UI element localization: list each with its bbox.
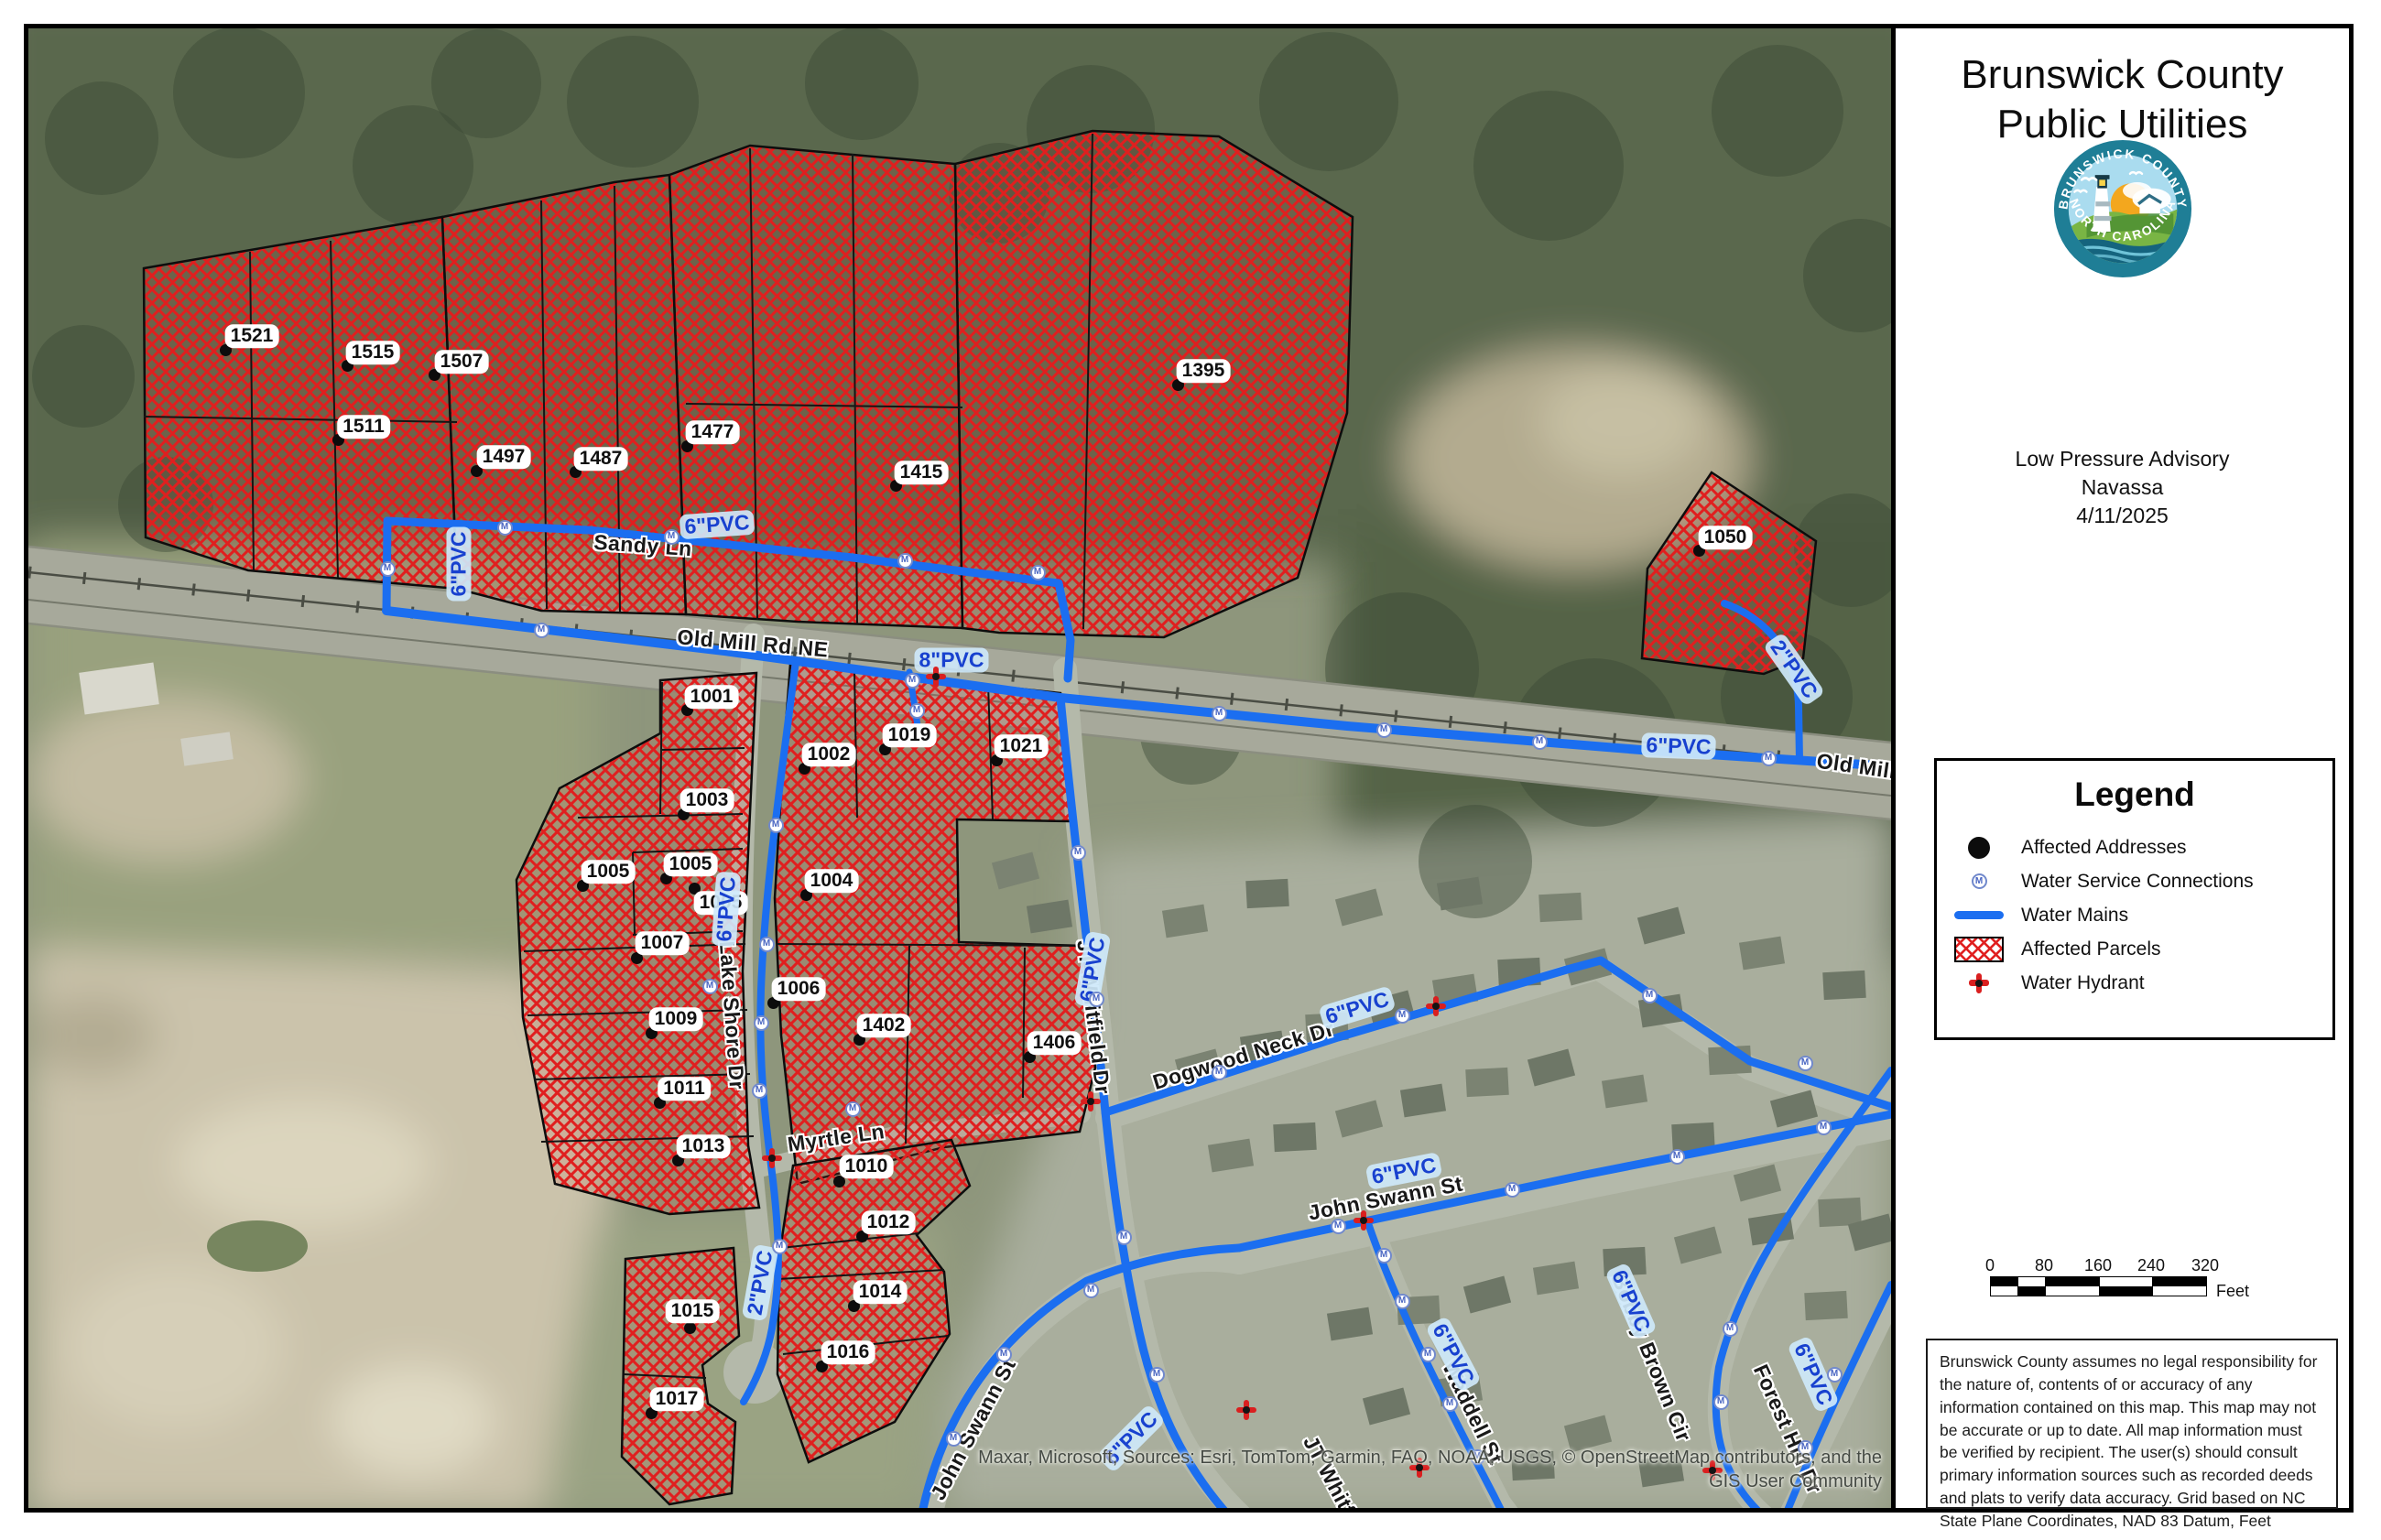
address-label: 1395: [1177, 359, 1231, 383]
water-service-connection-icon: M: [1089, 992, 1104, 1007]
address-label: 1001: [685, 685, 739, 709]
scale-bar: 0 80 160 240 320 Feet: [1990, 1256, 2265, 1296]
water-service-connection-icon: M: [1505, 1182, 1520, 1198]
side-panel: Brunswick County Public Utilities: [1896, 28, 2349, 1508]
water-service-connection-icon: M: [534, 623, 549, 638]
map-overlays: 1521151515071511149714871477141513951050…: [28, 28, 1891, 1508]
scale-tick: 320: [2191, 1256, 2219, 1275]
map-area: 1521151515071511149714871477141513951050…: [28, 28, 1896, 1508]
pipe-size-label: 6"PVC: [712, 872, 742, 948]
water-service-connection-icon: M: [1149, 1367, 1165, 1383]
address-label: 1507: [435, 350, 489, 374]
water-service-connection-icon: M: [768, 818, 784, 833]
water-service-connection-icon: M: [1395, 1294, 1410, 1309]
water-service-connection-icon: M: [752, 1083, 767, 1099]
address-label: 1009: [649, 1007, 703, 1031]
document-frame: 1521151515071511149714871477141513951050…: [24, 24, 2354, 1513]
water-hydrant-icon: [1236, 1400, 1256, 1420]
street-label: Myrtle Ln: [786, 1119, 886, 1157]
address-label: 1511: [337, 415, 390, 439]
water-service-connection-icon: M: [1376, 1248, 1392, 1263]
advisory-type: Low Pressure Advisory: [1896, 445, 2349, 473]
water-hydrant-icon: [1081, 1091, 1101, 1112]
water-service-connection-icon: M: [1420, 1347, 1436, 1362]
address-dot: [684, 1322, 696, 1334]
water-service-connection-icon: M: [1331, 1219, 1346, 1234]
affected-parcel-swatch-icon: [1954, 937, 2004, 962]
address-label: 1402: [857, 1014, 911, 1037]
water-service-connection-icon: M: [909, 703, 925, 719]
water-service-connection-icon: M: [845, 1101, 861, 1117]
water-hydrant-icon: [926, 667, 946, 687]
address-label: 1007: [636, 931, 690, 955]
map-subtitle: Low Pressure Advisory Navassa 4/11/2025: [1896, 445, 2349, 530]
address-label: 1515: [346, 341, 400, 364]
pipe-size-label: 6"PVC: [680, 510, 756, 540]
water-service-connection-icon: M: [1761, 751, 1777, 766]
legend-item-affected-addresses: Affected Addresses: [1937, 830, 2332, 864]
pipe-size-label: 2"PVC: [742, 1244, 779, 1321]
address-label: 1002: [802, 743, 856, 766]
scale-bar-unit: Feet: [2216, 1282, 2249, 1301]
scale-tick: 160: [2084, 1256, 2112, 1275]
affected-address-icon: [1968, 837, 1990, 859]
water-service-connection-icon: M: [1212, 706, 1227, 721]
page-title: Brunswick County Public Utilities: [1896, 50, 2349, 149]
street-label: Dogwood Neck Dr: [1150, 1016, 1337, 1095]
water-hydrant-icon: [762, 1148, 782, 1168]
water-service-connection-icon: M: [702, 979, 718, 994]
address-label: 1019: [883, 723, 937, 747]
water-service-connection-icon: M: [1376, 722, 1392, 738]
water-main-line-icon: [1954, 911, 2004, 919]
pipe-size-label: 6"PVC: [1318, 985, 1396, 1031]
address-label: 1487: [574, 447, 628, 471]
legend-item-water-hydrant: Water Hydrant: [1937, 966, 2332, 1000]
water-service-connection-icon: M: [664, 529, 680, 545]
legend-item-affected-parcels: Affected Parcels: [1937, 932, 2332, 966]
legend-item-label: Affected Addresses: [2021, 837, 2187, 859]
water-service-connection-icon: M: [897, 553, 913, 569]
water-service-connection-icon: M: [1532, 734, 1548, 750]
address-label: 1406: [1027, 1031, 1082, 1055]
legend-item-water-mains: Water Mains: [1937, 898, 2332, 932]
address-label: 1521: [225, 324, 279, 348]
water-service-connection-icon: M: [754, 1015, 769, 1031]
address-label: 1415: [895, 461, 949, 484]
legend-item-label: Affected Parcels: [2021, 938, 2161, 960]
water-service-connection-icon: M: [772, 1239, 788, 1254]
address-label: 1011: [658, 1077, 711, 1101]
address-label: 1013: [677, 1134, 731, 1158]
water-service-connection-icon: M: [1798, 1056, 1813, 1071]
water-service-connection-icon: M: [946, 1431, 962, 1447]
water-hydrant-icon: [1969, 973, 1989, 993]
street-label: Old Mill: [1815, 749, 1896, 785]
legend-item-label: Water Service Connections: [2021, 871, 2254, 893]
address-label: 1015: [666, 1299, 720, 1323]
water-service-connection-icon: M: [380, 561, 396, 577]
water-service-connection-icon: M: [759, 937, 775, 952]
water-service-connection-icon: M: [1395, 1008, 1410, 1024]
water-service-connection-icon: M: [1116, 1230, 1132, 1245]
scale-bar-ticks: 0 80 160 240 320: [1990, 1256, 2265, 1276]
address-label: 1497: [477, 445, 531, 469]
map-attribution: Maxar, Microsoft, Sources: Esri, TomTom,…: [966, 1446, 1882, 1493]
water-service-connection-icon: M: [1972, 873, 1987, 889]
legend-item-water-service-connections: M Water Service Connections: [1937, 864, 2332, 898]
address-label: 1010: [840, 1155, 894, 1178]
address-label: 1004: [805, 869, 859, 893]
water-service-connection-icon: M: [1083, 1283, 1099, 1298]
street-label: Lake Shore Dr: [714, 940, 749, 1090]
scale-tick: 240: [2137, 1256, 2165, 1275]
water-hydrant-icon: [1426, 996, 1446, 1016]
water-service-connection-icon: M: [1071, 845, 1086, 861]
water-hydrant-icon: [1354, 1210, 1374, 1231]
address-label: 1012: [862, 1210, 916, 1234]
water-service-connection-icon: M: [1212, 1065, 1227, 1080]
title-line-1: Brunswick County: [1896, 50, 2349, 100]
scale-tick: 0: [1985, 1256, 1995, 1275]
water-service-connection-icon: M: [1642, 988, 1658, 1003]
water-service-connection-icon: M: [1723, 1321, 1738, 1337]
legend-title: Legend: [1937, 775, 2332, 814]
water-service-connection-icon: M: [1669, 1149, 1685, 1165]
address-label: 1021: [995, 734, 1049, 758]
address-label: 1003: [680, 788, 734, 812]
address-label: 1006: [772, 977, 826, 1001]
water-service-connection-icon: M: [905, 673, 920, 689]
water-service-connection-icon: M: [1030, 565, 1046, 580]
address-label: 1017: [650, 1387, 704, 1411]
water-service-connection-icon: M: [1827, 1367, 1843, 1383]
street-label: Old Mill Rd NE: [676, 624, 829, 662]
address-label: 1477: [686, 420, 740, 444]
address-label: 1016: [821, 1340, 875, 1364]
legend-item-label: Water Hydrant: [2021, 972, 2145, 994]
map-document: 1521151515071511149714871477141513951050…: [0, 0, 2381, 1540]
scale-bar-graphic: [1990, 1276, 2207, 1296]
water-service-connection-icon: M: [1713, 1394, 1729, 1410]
disclaimer: Brunswick County assumes no legal respon…: [1926, 1339, 2338, 1509]
address-label: 1014: [853, 1280, 908, 1304]
water-service-connection-icon: M: [1442, 1396, 1458, 1412]
water-service-connection-icon: M: [996, 1347, 1012, 1362]
water-service-connection-icon: M: [1816, 1120, 1832, 1135]
pipe-size-label: 6"PVC: [447, 527, 472, 602]
advisory-location: Navassa: [1896, 473, 2349, 502]
pipe-size-label: 6"PVC: [1604, 1263, 1658, 1340]
address-label: 1050: [1699, 526, 1753, 549]
address-label: 1005: [582, 860, 636, 884]
pipe-size-label: 6"PVC: [1641, 732, 1716, 760]
pipe-size-label: 2"PVC: [1763, 632, 1826, 707]
brunswick-county-logo: BRUNSWICK COUNTY NORTH CAROLINA: [2050, 136, 2195, 281]
scale-tick: 80: [2035, 1256, 2053, 1275]
address-label: 1005: [664, 852, 718, 876]
water-service-connection-icon: M: [497, 520, 513, 536]
legend: Legend Affected Addresses M Water Servic…: [1934, 758, 2335, 1040]
advisory-date: 4/11/2025: [1896, 502, 2349, 530]
legend-item-label: Water Mains: [2021, 905, 2128, 927]
